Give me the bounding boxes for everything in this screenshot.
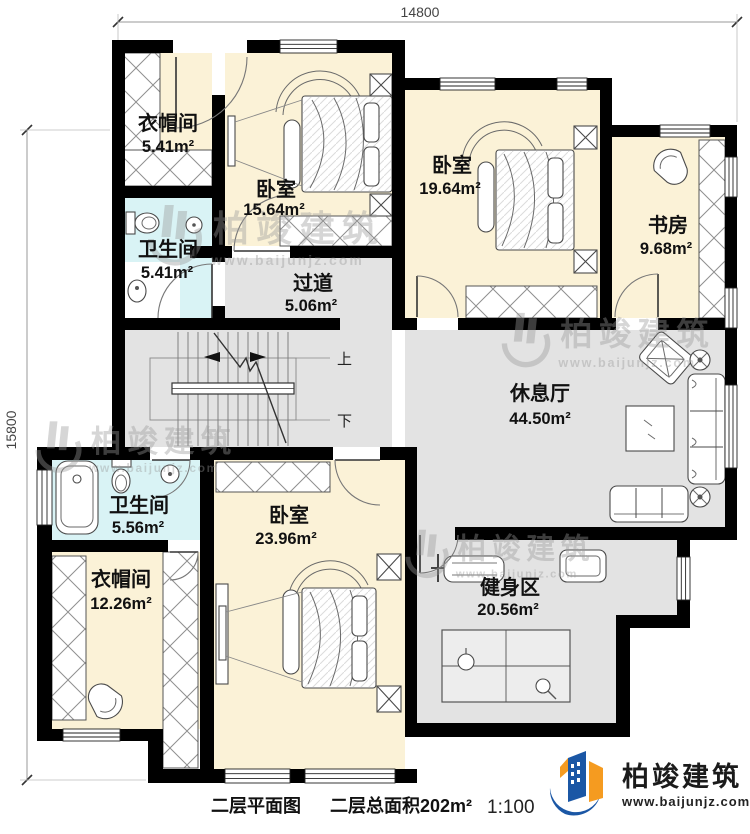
wardrobe-bedroom-bottom bbox=[216, 462, 330, 492]
stair-up-label: 上 bbox=[337, 351, 352, 368]
bookshelf-study bbox=[699, 140, 725, 318]
window bbox=[225, 769, 290, 783]
floor-plan-svg: 14800 15800 bbox=[0, 0, 750, 834]
window bbox=[280, 40, 337, 53]
toilet-tank bbox=[126, 212, 135, 234]
closet-cloakroom-bottom-right bbox=[163, 552, 198, 768]
svg-text:柏竣建筑: 柏竣建筑 bbox=[91, 424, 237, 459]
svg-text:44.50m²: 44.50m² bbox=[509, 410, 571, 428]
nightstand bbox=[377, 554, 401, 580]
stair-down-label: 下 bbox=[337, 413, 352, 430]
brand-website: www.baijunjz.com bbox=[621, 794, 750, 809]
svg-text:23.96m²: 23.96m² bbox=[255, 530, 317, 548]
caption: 二层平面图 二层总面积202m² 1:100 bbox=[211, 795, 535, 818]
room-label-bathroom-bottom: 卫生间 bbox=[109, 494, 169, 517]
dimension-top: 14800 bbox=[401, 4, 440, 20]
room-label-cloakroom-bottom: 衣帽间 bbox=[91, 567, 151, 591]
window bbox=[725, 385, 737, 468]
window bbox=[37, 470, 52, 525]
drawing-scale: 1:100 bbox=[487, 797, 535, 818]
nightstand bbox=[574, 250, 597, 273]
svg-text:5.56m²: 5.56m² bbox=[112, 519, 165, 537]
tv-bedroom-bottom bbox=[219, 606, 226, 660]
sofa-three-seat bbox=[688, 374, 725, 484]
window bbox=[557, 78, 587, 90]
dimension-left: 15800 bbox=[3, 410, 19, 449]
drawing-title: 二层平面图 bbox=[211, 796, 301, 816]
svg-text:www.baijunjz.com: www.baijunjz.com bbox=[557, 356, 696, 370]
window bbox=[725, 157, 737, 197]
gym-table bbox=[442, 630, 570, 702]
brand-logo-icon bbox=[550, 751, 603, 815]
window bbox=[305, 769, 395, 783]
nightstand bbox=[377, 686, 401, 712]
svg-text:5.06m²: 5.06m² bbox=[285, 297, 338, 315]
svg-text:19.64m²: 19.64m² bbox=[419, 180, 481, 198]
room-label-cloakroom-top: 衣帽间 bbox=[138, 111, 198, 135]
toilet bbox=[135, 213, 159, 233]
room-label-lounge: 休息厅 bbox=[509, 381, 570, 405]
pedestal-sink bbox=[128, 280, 146, 302]
window bbox=[725, 288, 737, 328]
svg-text:9.68m²: 9.68m² bbox=[640, 240, 693, 258]
total-area: 二层总面积202m² bbox=[330, 795, 472, 816]
svg-text:www.baijunjz.com: www.baijunjz.com bbox=[88, 461, 219, 475]
floor-plan-page: 14800 15800 bbox=[0, 0, 750, 834]
svg-text:5.41m²: 5.41m² bbox=[142, 138, 195, 156]
nightstand bbox=[574, 126, 597, 149]
window bbox=[660, 125, 710, 137]
plant bbox=[690, 487, 710, 507]
room-label-hallway: 过道 bbox=[293, 271, 333, 295]
coffee-table bbox=[626, 406, 674, 451]
brand-logo: 柏竣建筑 www.baijunjz.com bbox=[550, 751, 750, 815]
svg-text:15.64m²: 15.64m² bbox=[243, 201, 305, 219]
room-label-bedroom-top: 卧室 bbox=[256, 177, 296, 201]
window bbox=[677, 557, 690, 600]
closet-cloakroom-bottom-left bbox=[52, 556, 86, 720]
room-label-gym: 健身区 bbox=[480, 575, 540, 599]
svg-text:柏竣建筑: 柏竣建筑 bbox=[457, 532, 595, 565]
wardrobe-bedroom-right bbox=[466, 286, 597, 318]
nightstand bbox=[370, 74, 392, 96]
svg-text:柏竣建筑: 柏竣建筑 bbox=[560, 315, 715, 352]
sofa-two-seat bbox=[610, 486, 688, 522]
window bbox=[63, 729, 120, 741]
tv-bedroom-top bbox=[228, 116, 235, 166]
window bbox=[440, 78, 495, 90]
brand-name: 柏竣建筑 bbox=[622, 761, 742, 792]
svg-text:20.56m²: 20.56m² bbox=[477, 601, 539, 619]
svg-text:12.26m²: 12.26m² bbox=[90, 595, 152, 613]
svg-text:www.baijunjz.com: www.baijunjz.com bbox=[210, 252, 364, 268]
room-label-bathroom-top: 卫生间 bbox=[138, 238, 198, 261]
room-label-bedroom-right: 卧室 bbox=[432, 153, 472, 177]
room-label-bedroom-bottom: 卧室 bbox=[269, 503, 309, 527]
svg-text:5.41m²: 5.41m² bbox=[141, 264, 194, 282]
room-label-study: 书房 bbox=[648, 213, 688, 237]
